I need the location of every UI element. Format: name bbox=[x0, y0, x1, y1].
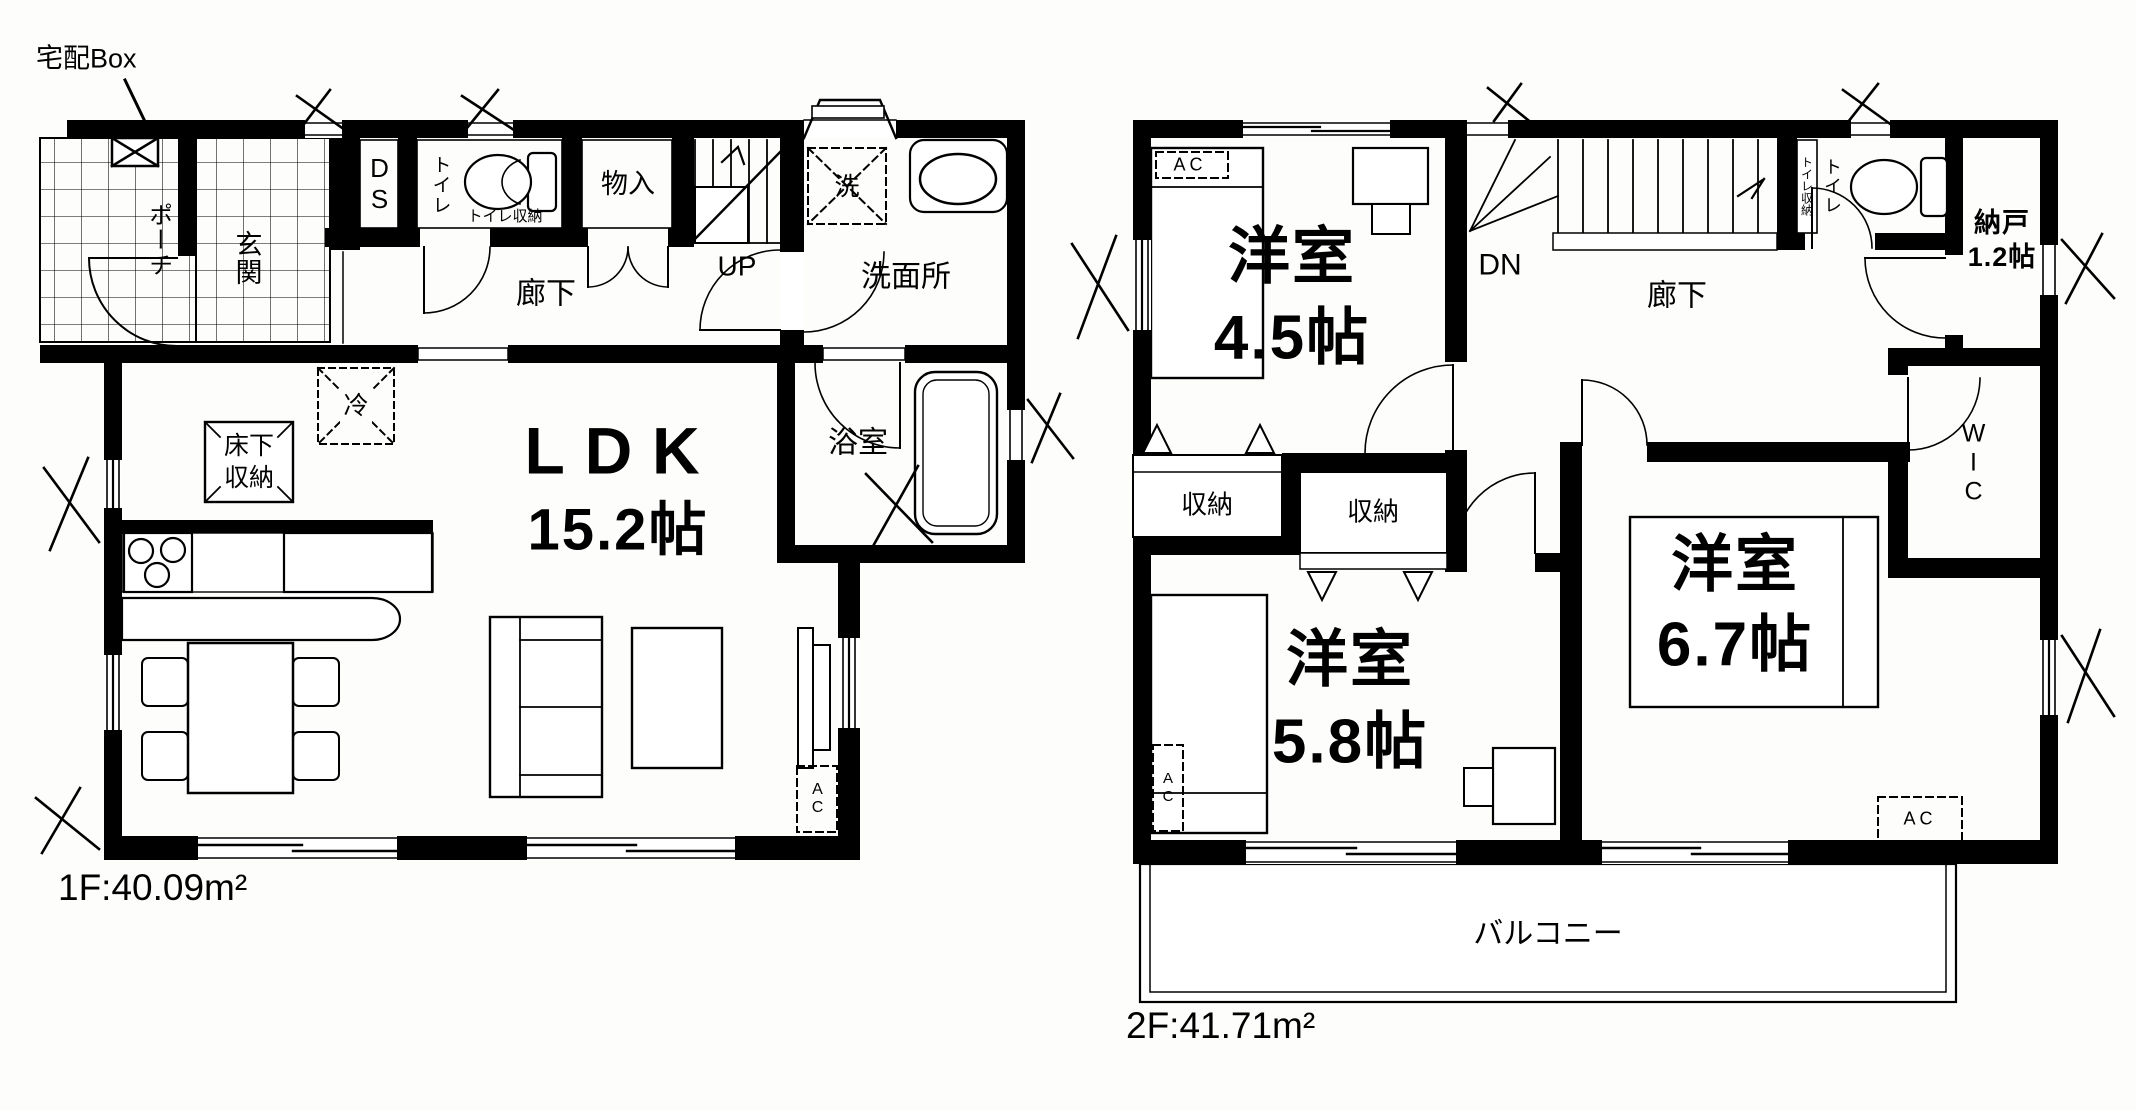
ac-label-4-5: AC bbox=[1173, 156, 1206, 175]
toilet-door-1f bbox=[424, 247, 490, 313]
room-label-wic: WIC bbox=[1959, 420, 1988, 507]
room-label-toilet-1f: トイレ bbox=[427, 155, 454, 215]
room-label-ldk-size: 15.2帖 bbox=[528, 501, 709, 562]
floor-plan-drawing bbox=[0, 0, 2136, 1110]
room-label-bedroom58: 洋室 bbox=[1286, 627, 1414, 692]
dining-set bbox=[142, 643, 339, 793]
fridge-label: 冷 bbox=[343, 393, 368, 419]
kitchen-counter bbox=[122, 520, 433, 640]
ac-label-5-8: AC bbox=[1160, 770, 1177, 806]
ldk-sliding-door bbox=[418, 348, 508, 360]
room-label-ds: DS bbox=[364, 153, 395, 215]
label-toilet-storage-1f: トイレ収納 bbox=[467, 209, 542, 225]
stairs-2f bbox=[1470, 140, 1777, 250]
room-label-storeroom: 納戸 bbox=[1974, 209, 2030, 237]
floor1-area-label: 1F:40.09m² bbox=[58, 867, 247, 909]
room-label-bedroom67-size: 6.7帖 bbox=[1657, 612, 1813, 677]
floor2-area-label: 2F:41.71m² bbox=[1126, 1005, 1315, 1047]
kitchen-peninsula bbox=[122, 598, 400, 640]
label-toilet-storage-2f: トイレ収納 bbox=[1799, 156, 1816, 216]
washer-label: 洗 bbox=[834, 174, 859, 200]
floor-storage-label-1: 床下 bbox=[224, 433, 274, 459]
room-label-bedroom45-size: 4.5帖 bbox=[1214, 305, 1370, 370]
bedroom45-door bbox=[1365, 365, 1453, 453]
closet-right-2f bbox=[1300, 472, 1447, 600]
closet-doors-1f bbox=[588, 247, 668, 287]
desk-5-8 bbox=[1464, 748, 1555, 824]
bay-window bbox=[804, 100, 896, 138]
closet-left-2f bbox=[1133, 425, 1282, 537]
dining-table bbox=[188, 643, 293, 793]
ac-label-1f: AC bbox=[808, 781, 826, 817]
ac-label-6-7: AC bbox=[1903, 810, 1936, 829]
bathtub bbox=[915, 372, 997, 534]
stairs-down-label: DN bbox=[1478, 249, 1521, 281]
closet-label-left: 収納 bbox=[1181, 491, 1233, 518]
tv-board bbox=[798, 628, 830, 768]
washroom-sink bbox=[910, 140, 1007, 212]
closet-label-right: 収納 bbox=[1347, 498, 1399, 525]
floor-plan-canvas: 宅配Box ポーチ 玄関 DS トイレ トイレ収納 物入 UP 廊下 洗 洗面所… bbox=[0, 0, 2136, 1110]
room-label-closet-1f: 物入 bbox=[601, 170, 655, 198]
room-label-bedroom67: 洋室 bbox=[1671, 532, 1799, 597]
bedroom67-door bbox=[1582, 380, 1647, 445]
floor-storage-label-2: 収納 bbox=[224, 465, 274, 491]
balcony-label: バルコニー bbox=[1473, 918, 1622, 950]
delivery-box-label: 宅配Box bbox=[36, 37, 137, 76]
room-label-toilet-2f: トイレ bbox=[1819, 158, 1845, 215]
storeroom-door bbox=[1865, 258, 1945, 338]
sofa bbox=[490, 617, 602, 797]
room-label-bathroom: 浴室 bbox=[828, 427, 888, 459]
toilet-fixture-1f bbox=[465, 153, 556, 211]
room-label-entrance: 玄関 bbox=[228, 230, 267, 286]
kitchen-sink bbox=[284, 533, 432, 592]
toilet-fixture-2f bbox=[1851, 158, 1947, 216]
room-label-ldk: LDK bbox=[524, 416, 719, 485]
room-label-bedroom58-size: 5.8帖 bbox=[1272, 709, 1428, 774]
room-label-hallway-2f: 廊下 bbox=[1647, 280, 1707, 312]
room-label-bedroom45: 洋室 bbox=[1228, 224, 1356, 289]
room-label-washroom: 洗面所 bbox=[861, 261, 951, 293]
room-label-hallway-1f: 廊下 bbox=[516, 278, 576, 310]
desk-4-5 bbox=[1353, 148, 1428, 234]
stairs-up-label: UP bbox=[718, 251, 757, 280]
living-table bbox=[632, 628, 722, 768]
stairs-1f bbox=[694, 140, 786, 243]
kitchen-stove bbox=[124, 533, 192, 592]
room-label-porch: ポーチ bbox=[141, 203, 176, 278]
room-label-storeroom-size: 1.2帖 bbox=[1968, 243, 2037, 271]
